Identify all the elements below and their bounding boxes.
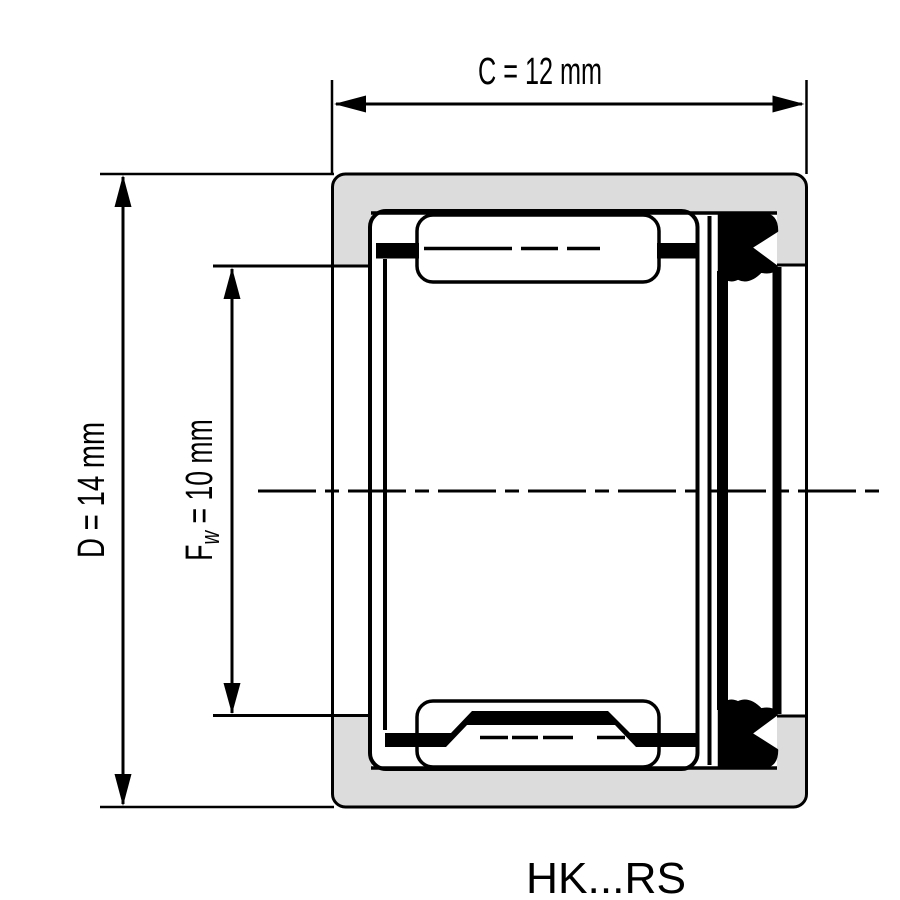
part-label: HK...RS <box>526 854 686 900</box>
dim-fw-arrow-up <box>224 268 241 300</box>
dim-fw-label-base: F <box>177 544 220 560</box>
seal-top <box>719 214 777 280</box>
dim-c-arrow-left <box>334 96 366 113</box>
dim-d-label: D = 14 mm <box>71 422 113 558</box>
cage-pocket-bar-top-left <box>376 243 419 259</box>
dim-c-label: C = 12 mm <box>478 51 602 93</box>
dim-fw-arrow-down <box>224 683 241 714</box>
dim-fw-label: Fw = 10 mm <box>177 419 225 560</box>
dim-fw-label-rest: = 10 mm <box>177 419 220 531</box>
dim-d-arrow-down <box>115 774 132 806</box>
cage-pocket-bar-top-right <box>657 243 698 259</box>
bearing-cross-section-diagram: C = 12 mm D = 14 mm Fw = 10 mm HK...RS <box>0 0 900 900</box>
dim-d-arrow-up <box>115 175 132 207</box>
seal-bottom <box>719 701 777 767</box>
dimension-c: C = 12 mm <box>332 51 807 174</box>
seal-bottom-group <box>719 701 777 767</box>
bearing-drawing-page: C = 12 mm D = 14 mm Fw = 10 mm HK...RS <box>0 0 900 900</box>
dim-c-arrow-right <box>773 96 805 113</box>
